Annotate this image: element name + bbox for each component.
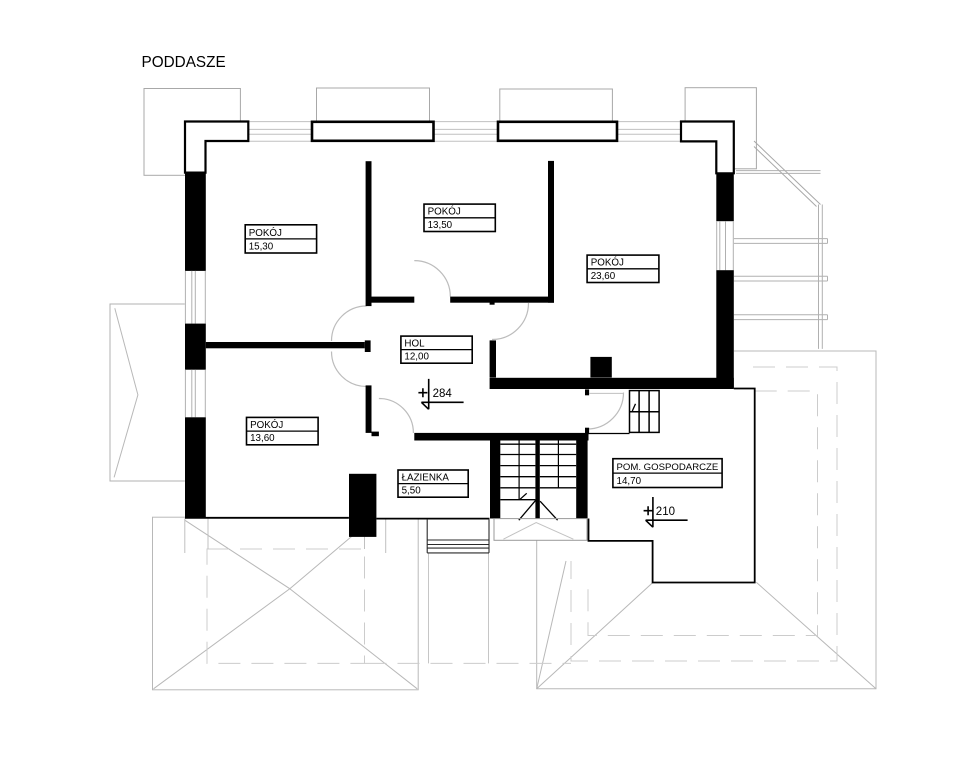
svg-text:HOL: HOL (404, 338, 425, 349)
svg-text:POKÓJ: POKÓJ (591, 258, 624, 269)
svg-text:15,30: 15,30 (249, 242, 274, 253)
svg-text:POKÓJ: POKÓJ (250, 420, 283, 431)
svg-text:POKÓJ: POKÓJ (249, 228, 282, 239)
svg-text:13,60: 13,60 (250, 433, 275, 444)
svg-text:13,50: 13,50 (428, 220, 453, 231)
svg-text:14,70: 14,70 (617, 476, 642, 487)
svg-text:284: 284 (433, 388, 453, 400)
svg-text:POKÓJ: POKÓJ (428, 207, 461, 218)
svg-text:ŁAZIENKA: ŁAZIENKA (402, 472, 450, 483)
svg-text:12,00: 12,00 (404, 352, 429, 363)
svg-text:POM. GOSPODARCZE: POM. GOSPODARCZE (617, 462, 719, 473)
svg-text:5,50: 5,50 (402, 486, 422, 497)
svg-text:23,60: 23,60 (591, 271, 616, 282)
svg-text:PODDASZE: PODDASZE (142, 54, 226, 71)
svg-text:210: 210 (656, 506, 675, 518)
